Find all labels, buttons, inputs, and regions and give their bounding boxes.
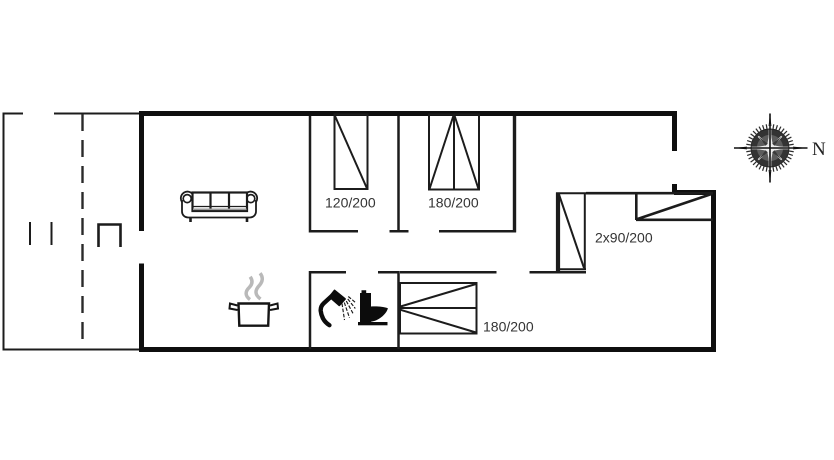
svg-text:180/200: 180/200: [428, 195, 479, 211]
svg-text:120/200: 120/200: [325, 195, 376, 211]
svg-text:N: N: [812, 139, 826, 160]
svg-text:2x90/200: 2x90/200: [595, 230, 653, 246]
svg-text:180/200: 180/200: [483, 319, 534, 335]
